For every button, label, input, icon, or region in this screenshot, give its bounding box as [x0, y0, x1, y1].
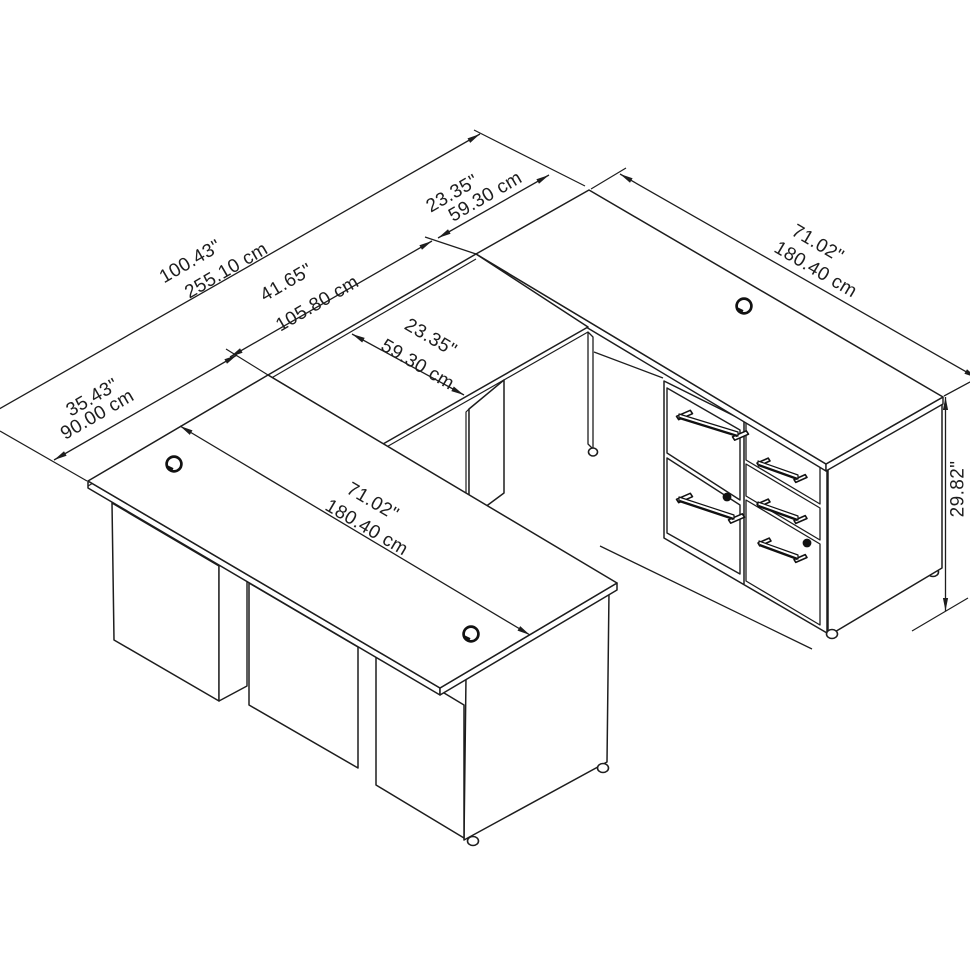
svg-text:29.82": 29.82" — [948, 461, 969, 518]
